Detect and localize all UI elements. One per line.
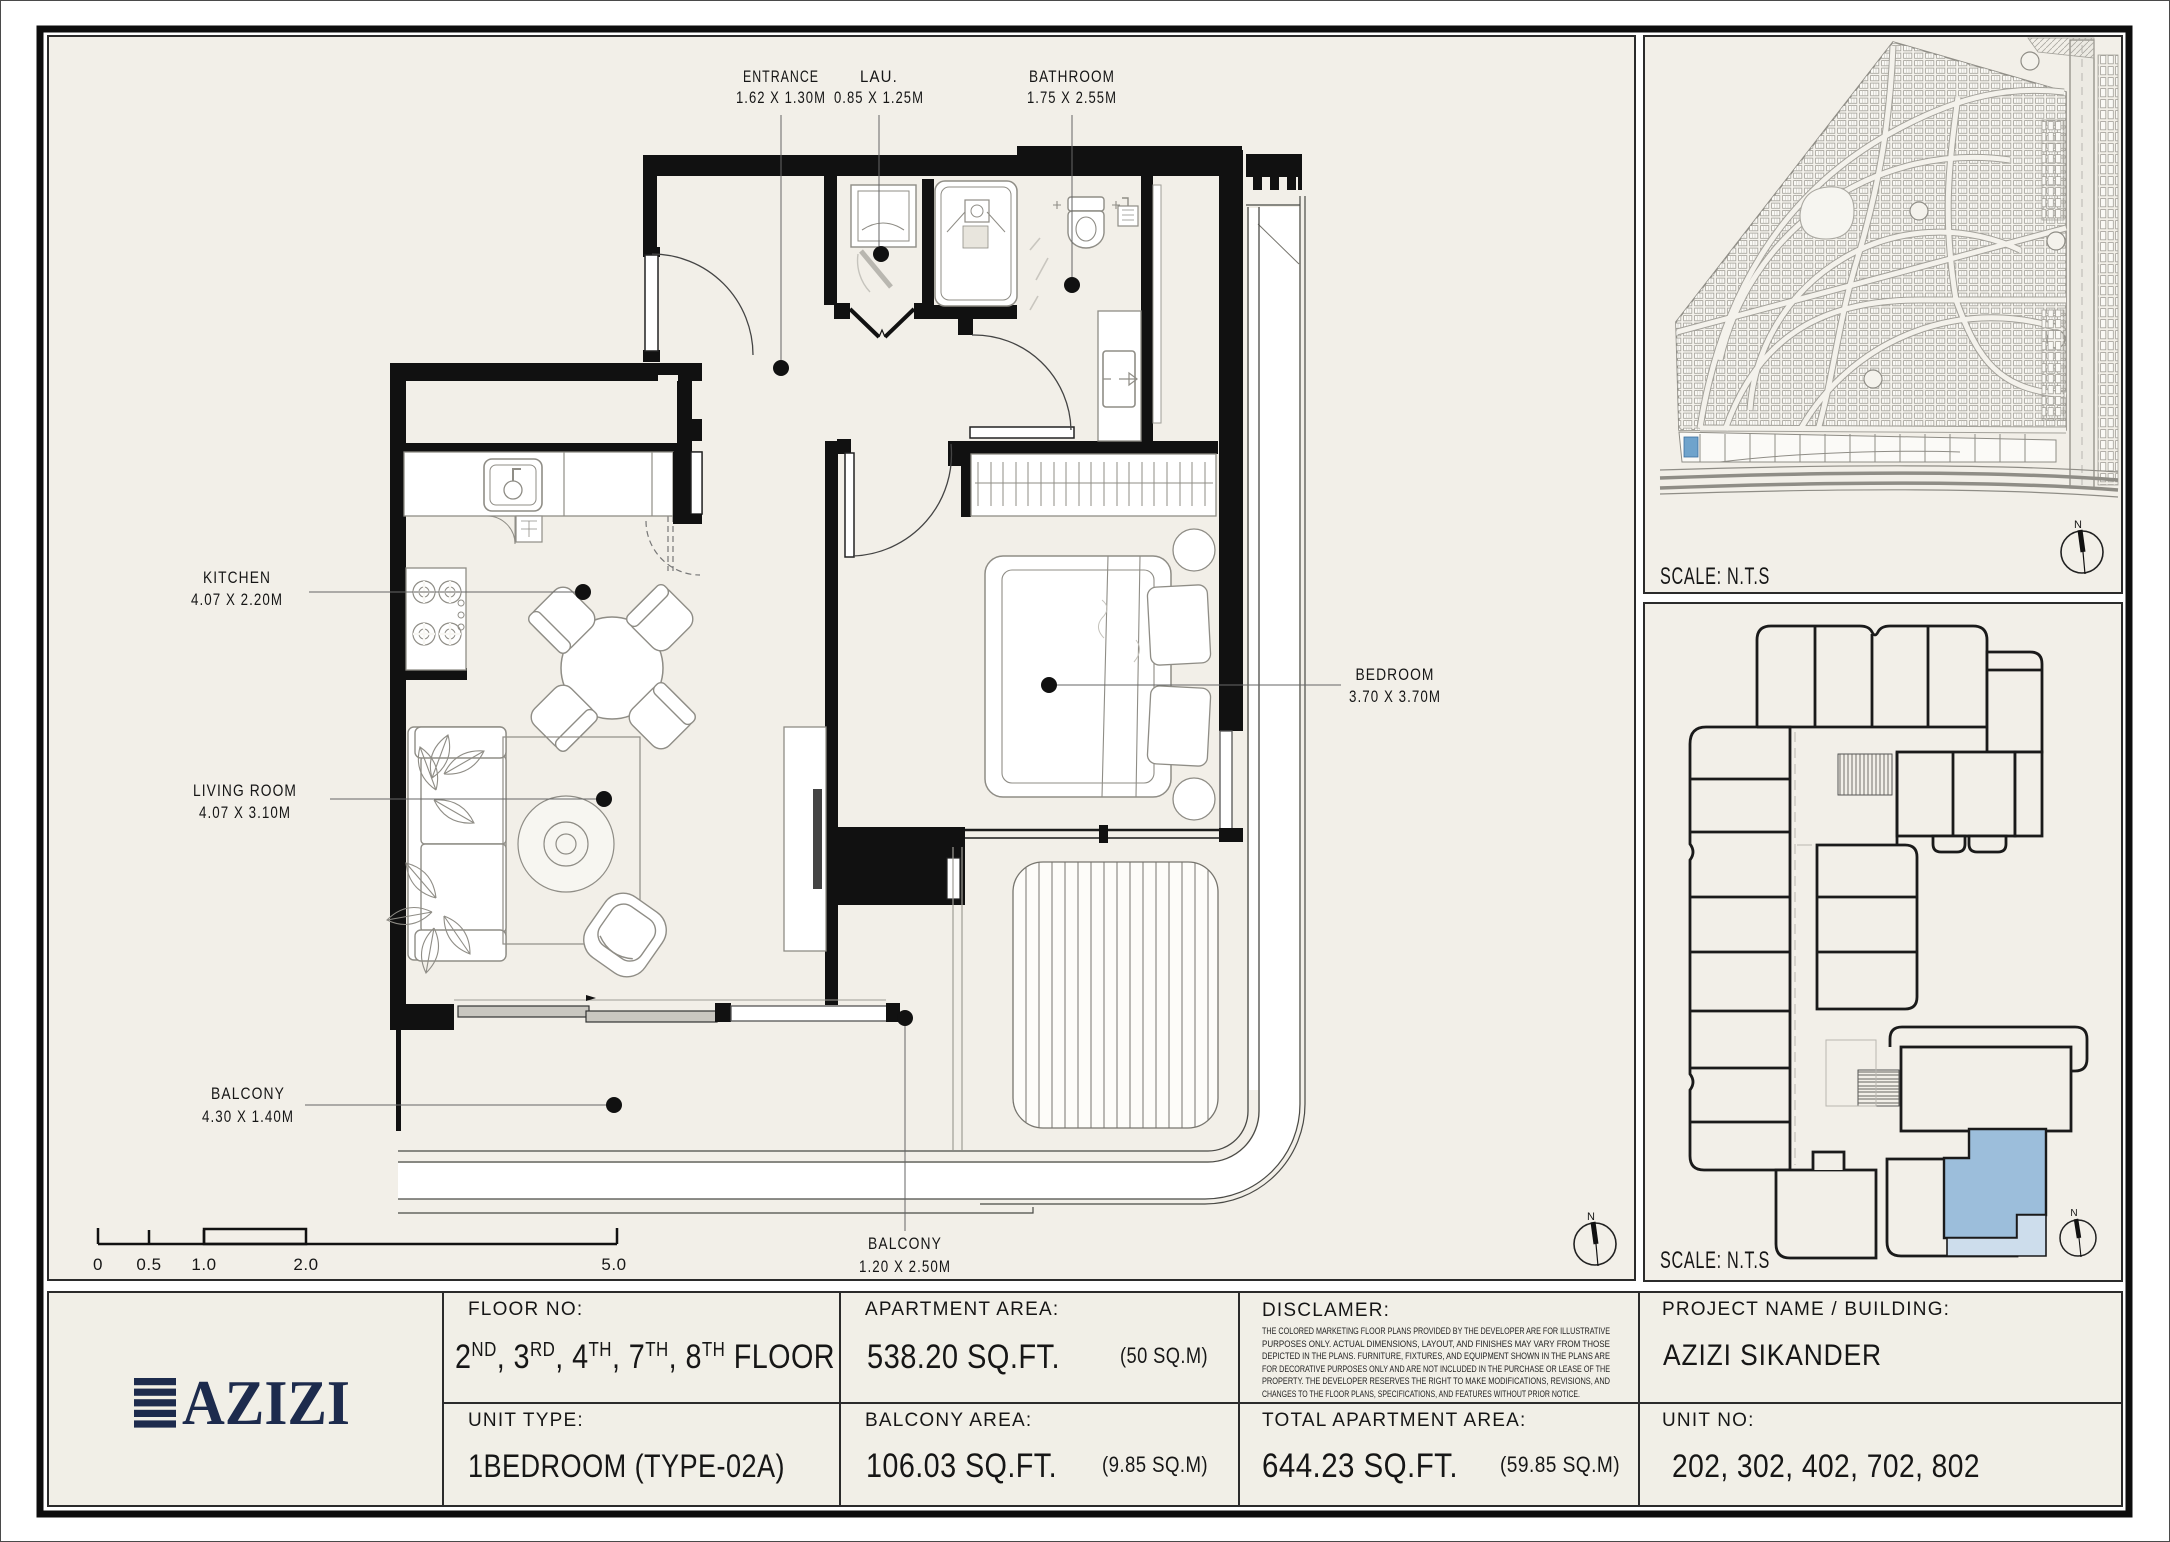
svg-text:3.70 X 3.70M: 3.70 X 3.70M — [1349, 688, 1441, 706]
svg-text:0: 0 — [93, 1255, 103, 1274]
svg-text:DISCLAMER:: DISCLAMER: — [1262, 1300, 1390, 1321]
svg-text:DEPICTED IN THE PLANS. FURNITU: DEPICTED IN THE PLANS. FURNITURE, FIXTUR… — [1262, 1350, 1610, 1361]
svg-text:BEDROOM: BEDROOM — [1356, 666, 1435, 684]
svg-text:106.03 SQ.FT.: 106.03 SQ.FT. — [866, 1447, 1057, 1485]
svg-text:SCALE: N.T.S: SCALE: N.T.S — [1660, 563, 1770, 590]
svg-text:THE COLORED MARKETING FLOOR PL: THE COLORED MARKETING FLOOR PLANS PROVID… — [1262, 1325, 1610, 1336]
svg-text:APARTMENT AREA:: APARTMENT AREA: — [865, 1299, 1059, 1320]
svg-text:0.85 X 1.25M: 0.85 X 1.25M — [834, 89, 924, 107]
svg-text:ENTRANCE: ENTRANCE — [743, 68, 819, 86]
svg-text:1BEDROOM (TYPE-02A): 1BEDROOM (TYPE-02A) — [468, 1448, 785, 1484]
svg-text:AZIZI SIKANDER: AZIZI SIKANDER — [1663, 1339, 1882, 1372]
svg-text:LIVING ROOM: LIVING ROOM — [193, 782, 297, 800]
svg-text:SCALE: N.T.S: SCALE: N.T.S — [1660, 1247, 1770, 1274]
svg-text:N: N — [2074, 519, 2082, 531]
svg-text:CHANGES TO THE FLOOR PLANS, SP: CHANGES TO THE FLOOR PLANS, SPECIFICATIO… — [1262, 1388, 1580, 1399]
svg-text:PROPERTY. THE DEVELOPER RESERV: PROPERTY. THE DEVELOPER RESERVES THE RIG… — [1262, 1375, 1610, 1386]
svg-text:FLOOR NO:: FLOOR NO: — [468, 1299, 583, 1320]
svg-text:202, 302, 402, 702, 802: 202, 302, 402, 702, 802 — [1672, 1448, 1980, 1484]
svg-text:KITCHEN: KITCHEN — [203, 569, 271, 587]
svg-text:FOR DECORATIVE PURPOSES ONLY A: FOR DECORATIVE PURPOSES ONLY AND ARE NOT… — [1262, 1363, 1610, 1374]
svg-text:538.20 SQ.FT.: 538.20 SQ.FT. — [867, 1338, 1060, 1376]
svg-text:TOTAL APARTMENT AREA:: TOTAL APARTMENT AREA: — [1262, 1410, 1527, 1431]
svg-text:1.20 X 2.50M: 1.20 X 2.50M — [859, 1258, 951, 1276]
svg-text:4.30 X 1.40M: 4.30 X 1.40M — [202, 1108, 294, 1126]
svg-text:(9.85 SQ.M): (9.85 SQ.M) — [1102, 1452, 1208, 1477]
svg-text:4.07 X 3.10M: 4.07 X 3.10M — [199, 804, 291, 822]
svg-text:2.0: 2.0 — [293, 1255, 318, 1274]
svg-text:N: N — [1587, 1211, 1595, 1223]
svg-text:5.0: 5.0 — [601, 1255, 626, 1274]
svg-text:AZIZI: AZIZI — [182, 1367, 350, 1438]
svg-text:BALCONY AREA:: BALCONY AREA: — [865, 1410, 1032, 1431]
svg-text:1.0: 1.0 — [191, 1255, 216, 1274]
svg-text:1.75 X 2.55M: 1.75 X 2.55M — [1027, 89, 1117, 107]
svg-text:(59.85 SQ.M): (59.85 SQ.M) — [1500, 1452, 1620, 1477]
svg-text:UNIT TYPE:: UNIT TYPE: — [468, 1410, 584, 1431]
svg-text:BALCONY: BALCONY — [868, 1235, 942, 1253]
svg-text:LAU.: LAU. — [860, 68, 898, 86]
svg-text:PROJECT NAME / BUILDING:: PROJECT NAME / BUILDING: — [1662, 1299, 1950, 1320]
svg-text:BALCONY: BALCONY — [211, 1085, 285, 1103]
svg-text:1.62 X 1.30M: 1.62 X 1.30M — [736, 89, 826, 107]
svg-text:UNIT NO:: UNIT NO: — [1662, 1410, 1755, 1431]
svg-text:PURPOSES ONLY. ACTUAL DIMENSIO: PURPOSES ONLY. ACTUAL DIMENSIONS, LAYOUT… — [1262, 1338, 1610, 1349]
svg-text:N: N — [2070, 1208, 2077, 1219]
svg-text:0.5: 0.5 — [136, 1255, 161, 1274]
svg-text:644.23 SQ.FT.: 644.23 SQ.FT. — [1262, 1447, 1458, 1485]
svg-text:(50 SQ.M): (50 SQ.M) — [1120, 1343, 1208, 1368]
svg-text:4.07 X 2.20M: 4.07 X 2.20M — [191, 591, 283, 609]
svg-text:BATHROOM: BATHROOM — [1029, 68, 1115, 86]
svg-text:2ND, 3RD, 4TH, 7TH, 8TH FLOOR: 2ND, 3RD, 4TH, 7TH, 8TH FLOOR — [455, 1338, 835, 1376]
